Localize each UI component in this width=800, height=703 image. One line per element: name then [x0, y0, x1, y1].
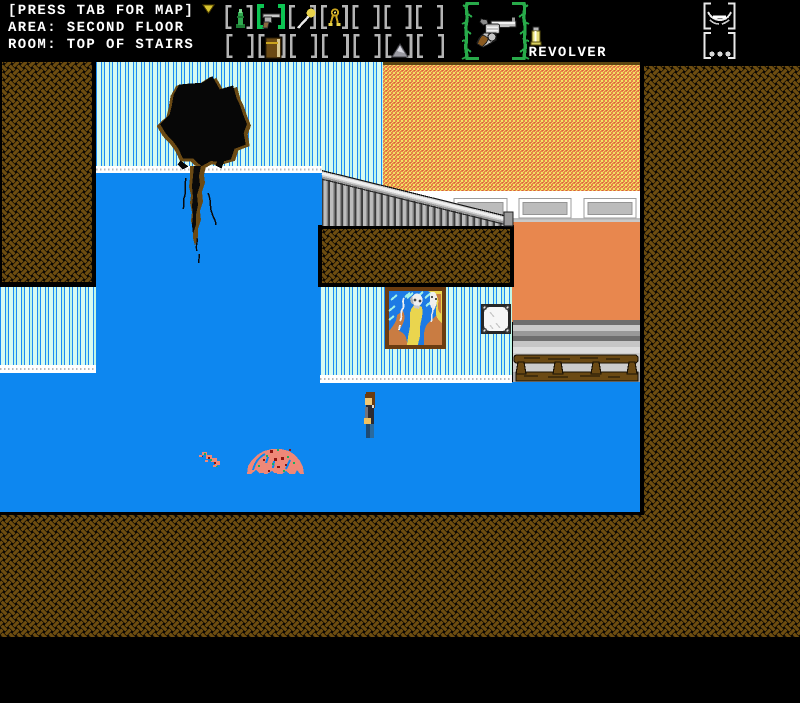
- svg-text:ROOM: TOP OF STAIRS: ROOM: TOP OF STAIRS: [8, 37, 194, 53]
- svg-text:[PRESS TAB FOR MAP]: [PRESS TAB FOR MAP]: [8, 3, 194, 19]
- svg-text:AREA: SECOND FLOOR: AREA: SECOND FLOOR: [8, 20, 184, 36]
- svg-text:REVOLVER: REVOLVER: [529, 45, 607, 61]
